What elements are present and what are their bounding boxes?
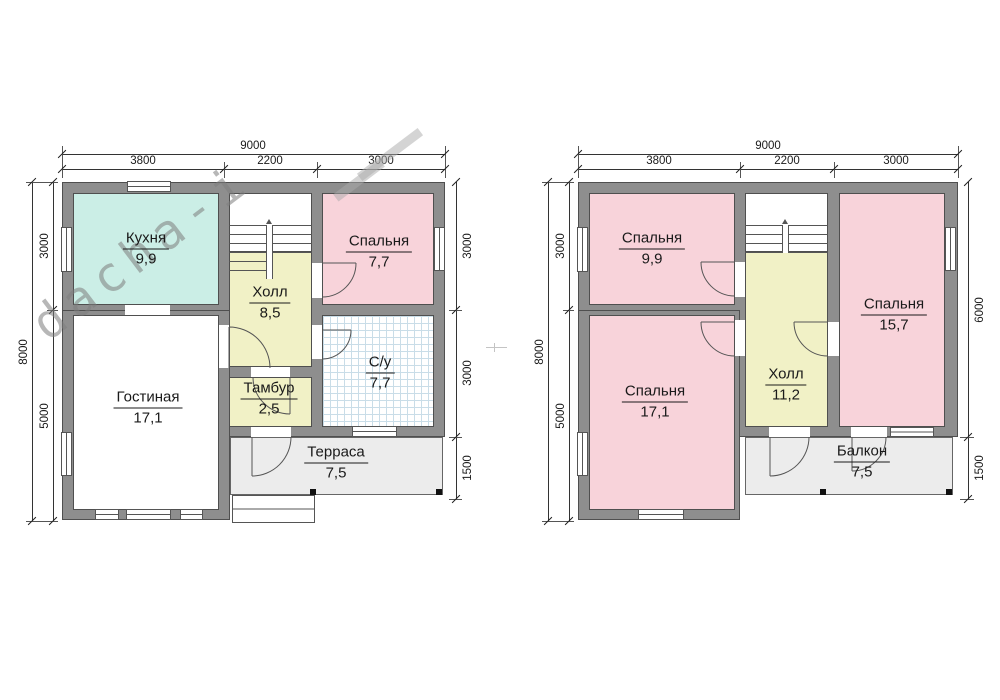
- dim-extension: [740, 162, 741, 178]
- room-name: Холл: [249, 284, 290, 304]
- door-opening: [851, 427, 887, 437]
- room-name: Гостиная: [114, 389, 183, 409]
- room-name: Терраса: [304, 444, 368, 464]
- room-area: 7,5: [834, 463, 890, 482]
- room-name: Кухня: [123, 230, 169, 250]
- dim-label: 3000: [39, 233, 51, 259]
- door-opening: [769, 427, 810, 437]
- room-name: Тамбур: [241, 380, 298, 400]
- room-name: С/у: [366, 354, 395, 374]
- dim-label: 3000: [883, 155, 909, 167]
- dim-label: 3000: [462, 233, 474, 259]
- dim-line: [456, 182, 457, 500]
- dim-label-total-height: 8000: [18, 339, 30, 365]
- dim-line: [53, 182, 54, 522]
- dim-label: 3000: [462, 360, 474, 386]
- dim-label-total-width: 9000: [755, 140, 781, 152]
- dim-line: [578, 169, 958, 170]
- room-area: 2,5: [241, 400, 298, 419]
- dim-line: [548, 182, 549, 522]
- window: [61, 227, 72, 272]
- floor-plans-canvas: dacha-i: [0, 0, 1000, 700]
- dim-label: 3000: [555, 233, 567, 259]
- room-name: Спальня: [861, 296, 927, 316]
- window: [352, 426, 397, 437]
- window: [890, 427, 934, 437]
- dim-label-total-height: 8000: [534, 339, 546, 365]
- passage-opening: [125, 305, 170, 315]
- door-opening: [735, 262, 745, 297]
- room-area: 9,9: [123, 250, 169, 269]
- dim-label: 2200: [774, 155, 800, 167]
- room-label-hall: Холл8,5: [249, 284, 290, 323]
- dim-line: [569, 182, 570, 522]
- entrance-steps: [232, 495, 315, 523]
- room-area: 11,2: [765, 386, 806, 405]
- balcony-post: [820, 489, 826, 495]
- room-label-bathroom: С/у7,7: [366, 354, 395, 393]
- door-opening: [828, 322, 839, 356]
- room-name: Спальня: [622, 383, 688, 403]
- dim-line: [968, 182, 969, 500]
- room-label-hall2: Холл11,2: [765, 366, 806, 405]
- room-area: 7,7: [366, 374, 395, 393]
- room-area: 15,7: [861, 316, 927, 335]
- dim-label: 3800: [130, 155, 156, 167]
- room-name: Спальня: [619, 230, 685, 250]
- dim-label: 1500: [462, 455, 474, 481]
- terrace-post: [310, 489, 316, 495]
- room-area: 7,7: [346, 253, 412, 272]
- dim-extension: [317, 162, 318, 178]
- room-label-bedroom99: Спальня9,9: [619, 230, 685, 269]
- window: [638, 509, 684, 520]
- stair-treads: [229, 225, 267, 279]
- room-label-bedroom: Спальня7,7: [346, 233, 412, 272]
- room-label-living: Гостиная17,1: [114, 389, 183, 428]
- door-opening: [251, 427, 291, 437]
- stair-direction-arrow: [266, 219, 272, 224]
- window: [126, 509, 171, 520]
- dim-label: 3800: [646, 155, 672, 167]
- room-label-bedroom171: Спальня17,1: [622, 383, 688, 422]
- stair-divider: [782, 225, 789, 253]
- window: [127, 181, 171, 192]
- room-area: 7,5: [304, 464, 368, 483]
- dim-label: 2200: [257, 155, 283, 167]
- balcony-post: [946, 489, 952, 495]
- room-area: 17,1: [114, 409, 183, 428]
- door-opening: [312, 263, 322, 298]
- window: [434, 227, 445, 271]
- terrace-post: [436, 489, 442, 495]
- room-name: Холл: [765, 366, 806, 386]
- door-opening: [312, 325, 322, 359]
- stair-treads: [273, 225, 312, 253]
- stair-direction-arrow: [782, 219, 788, 224]
- stair-divider: [266, 225, 273, 279]
- room-name: Балкон: [834, 443, 890, 463]
- dim-label: 1500: [974, 455, 986, 481]
- room-name: Спальня: [346, 233, 412, 253]
- window: [577, 227, 588, 272]
- room-label-terrace: Терраса7,5: [304, 444, 368, 483]
- room-label-kitchen: Кухня9,9: [123, 230, 169, 269]
- room-area: 9,9: [619, 250, 685, 269]
- dim-label: 5000: [555, 403, 567, 429]
- dim-label: 5000: [39, 403, 51, 429]
- window: [61, 432, 72, 476]
- window: [95, 509, 119, 520]
- dim-extension: [834, 162, 835, 178]
- window: [945, 227, 956, 271]
- stair-treads: [789, 225, 828, 253]
- stair-treads: [745, 225, 783, 253]
- center-plus-mark: [486, 347, 507, 348]
- dim-label: 6000: [974, 297, 986, 323]
- dim-line: [62, 169, 445, 170]
- room-area: 17,1: [622, 403, 688, 422]
- door-opening: [219, 325, 229, 368]
- dim-line: [32, 182, 33, 522]
- door-opening: [735, 320, 745, 356]
- room-label-tambour: Тамбур2,5: [241, 380, 298, 419]
- room-label-balcony: Балкон7,5: [834, 443, 890, 482]
- dim-label-total-width: 9000: [240, 140, 266, 152]
- center-plus-mark: [494, 343, 495, 352]
- room-area: 8,5: [249, 304, 290, 323]
- window: [577, 432, 588, 476]
- window: [180, 509, 203, 520]
- door-opening: [251, 367, 290, 377]
- room-label-bedroom157: Спальня15,7: [861, 296, 927, 335]
